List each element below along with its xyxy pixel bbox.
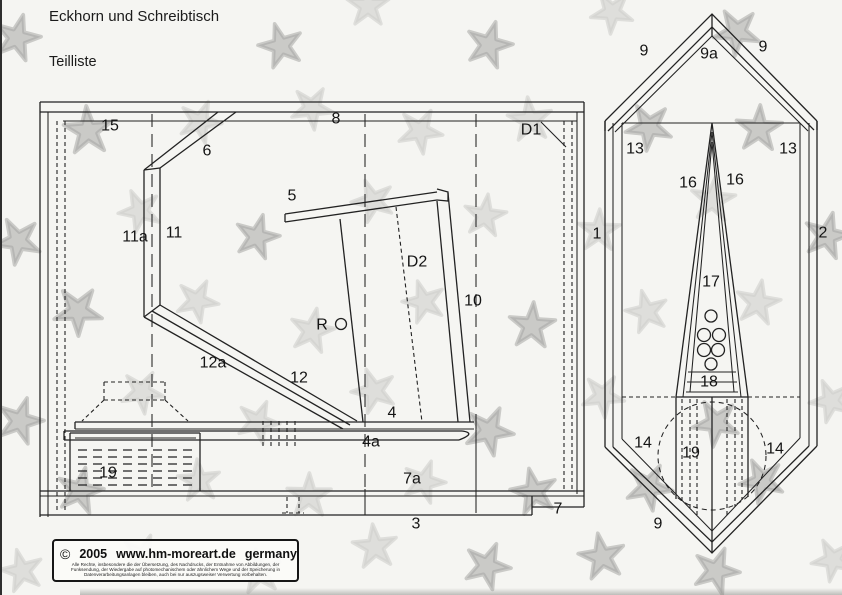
dowel-hole: [698, 329, 711, 342]
base-plinth: [40, 491, 584, 515]
cabinet-frame: [40, 102, 584, 517]
part-label-8: 8: [332, 111, 341, 128]
corner-post-triangle-16-17: [676, 123, 748, 397]
top-view-part-labels: 99a9131316161217181414199: [593, 39, 828, 533]
part-label-19: 19: [682, 445, 700, 462]
part-label-16: 16: [726, 172, 744, 189]
d1-leader-line: [541, 122, 566, 147]
center-column-19: [658, 397, 766, 531]
part-label-4: 4: [388, 405, 397, 422]
desk-top-strip-5: [285, 189, 448, 222]
part-label-15: 15: [101, 118, 119, 135]
part-label-9: 9: [640, 43, 649, 60]
part-label-11a: 11a: [122, 229, 148, 246]
part-label-2: 2: [819, 225, 828, 242]
dowel-hole: [705, 310, 717, 322]
scan-bottom-shadow: [80, 588, 842, 595]
dowel-hole: [698, 344, 711, 357]
part-label-18: 18: [700, 374, 718, 391]
part-label-1: 1: [593, 226, 602, 243]
part-label-6: 6: [203, 143, 212, 160]
part-label-19: 19: [99, 465, 117, 482]
copyright-site: www.hm-moreart.de: [116, 547, 236, 561]
part-label-5: 5: [288, 188, 297, 205]
dowel-hole: [705, 358, 717, 370]
part-label-r: R: [316, 317, 328, 334]
part-label-9: 9: [654, 516, 663, 533]
copyright-fine-print: Alle Rechte, insbesondere die der Überse…: [60, 562, 291, 578]
part-label-14: 14: [634, 435, 652, 452]
part-label-d2: D2: [407, 254, 428, 271]
part-label-9: 9: [759, 39, 768, 56]
dowel-hole: [713, 329, 726, 342]
part-label-3: 3: [412, 516, 421, 533]
side-view-part-labels: 158D16511a11D210R12a1244a197a37: [99, 111, 562, 533]
scanned-plan-page: Eckhorn und Schreibtisch Teilliste: [0, 0, 842, 595]
part-label-16: 16: [679, 175, 697, 192]
part-label-14: 14: [766, 441, 784, 458]
plan-drawing-canvas: 158D16511a11D210R12a1244a197a37 99a91313…: [0, 0, 842, 595]
copyright-symbol: ©: [60, 546, 70, 562]
desk-panel: [336, 193, 471, 422]
hole-marker-r: [336, 319, 347, 330]
part-label-4a: 4a: [362, 434, 380, 451]
copyright-year: 2005: [79, 547, 107, 561]
part-label-17: 17: [702, 274, 720, 291]
bottom-point-strips-9: [605, 438, 817, 553]
part-label-10: 10: [464, 293, 482, 310]
copyright-country: germany: [245, 547, 297, 561]
lamp-funnel-hidden: [82, 382, 188, 421]
part-label-12: 12: [290, 370, 308, 387]
part-label-7: 7: [554, 501, 563, 518]
fine-print-line: Datenverarbeitungsanlagen bleiben, auch …: [60, 572, 291, 577]
dowel-hole: [712, 344, 725, 357]
drawer-19: [70, 433, 200, 491]
copyright-box: © 2005 www.hm-moreart.de germany Alle Re…: [52, 539, 299, 582]
part-label-7a: 7a: [403, 471, 421, 488]
side-view-drawing: [40, 102, 584, 517]
scan-edge-strip: [0, 0, 2, 595]
part-label-13: 13: [626, 141, 644, 158]
part-label-12a: 12a: [200, 355, 227, 372]
part-label-13: 13: [779, 141, 797, 158]
part-label-9a: 9a: [700, 46, 718, 63]
copyright-line: © 2005 www.hm-moreart.de germany: [60, 545, 291, 561]
roof-strips-9: [605, 14, 817, 132]
part-label-d1: D1: [521, 122, 542, 139]
part-label-11: 11: [166, 225, 183, 242]
